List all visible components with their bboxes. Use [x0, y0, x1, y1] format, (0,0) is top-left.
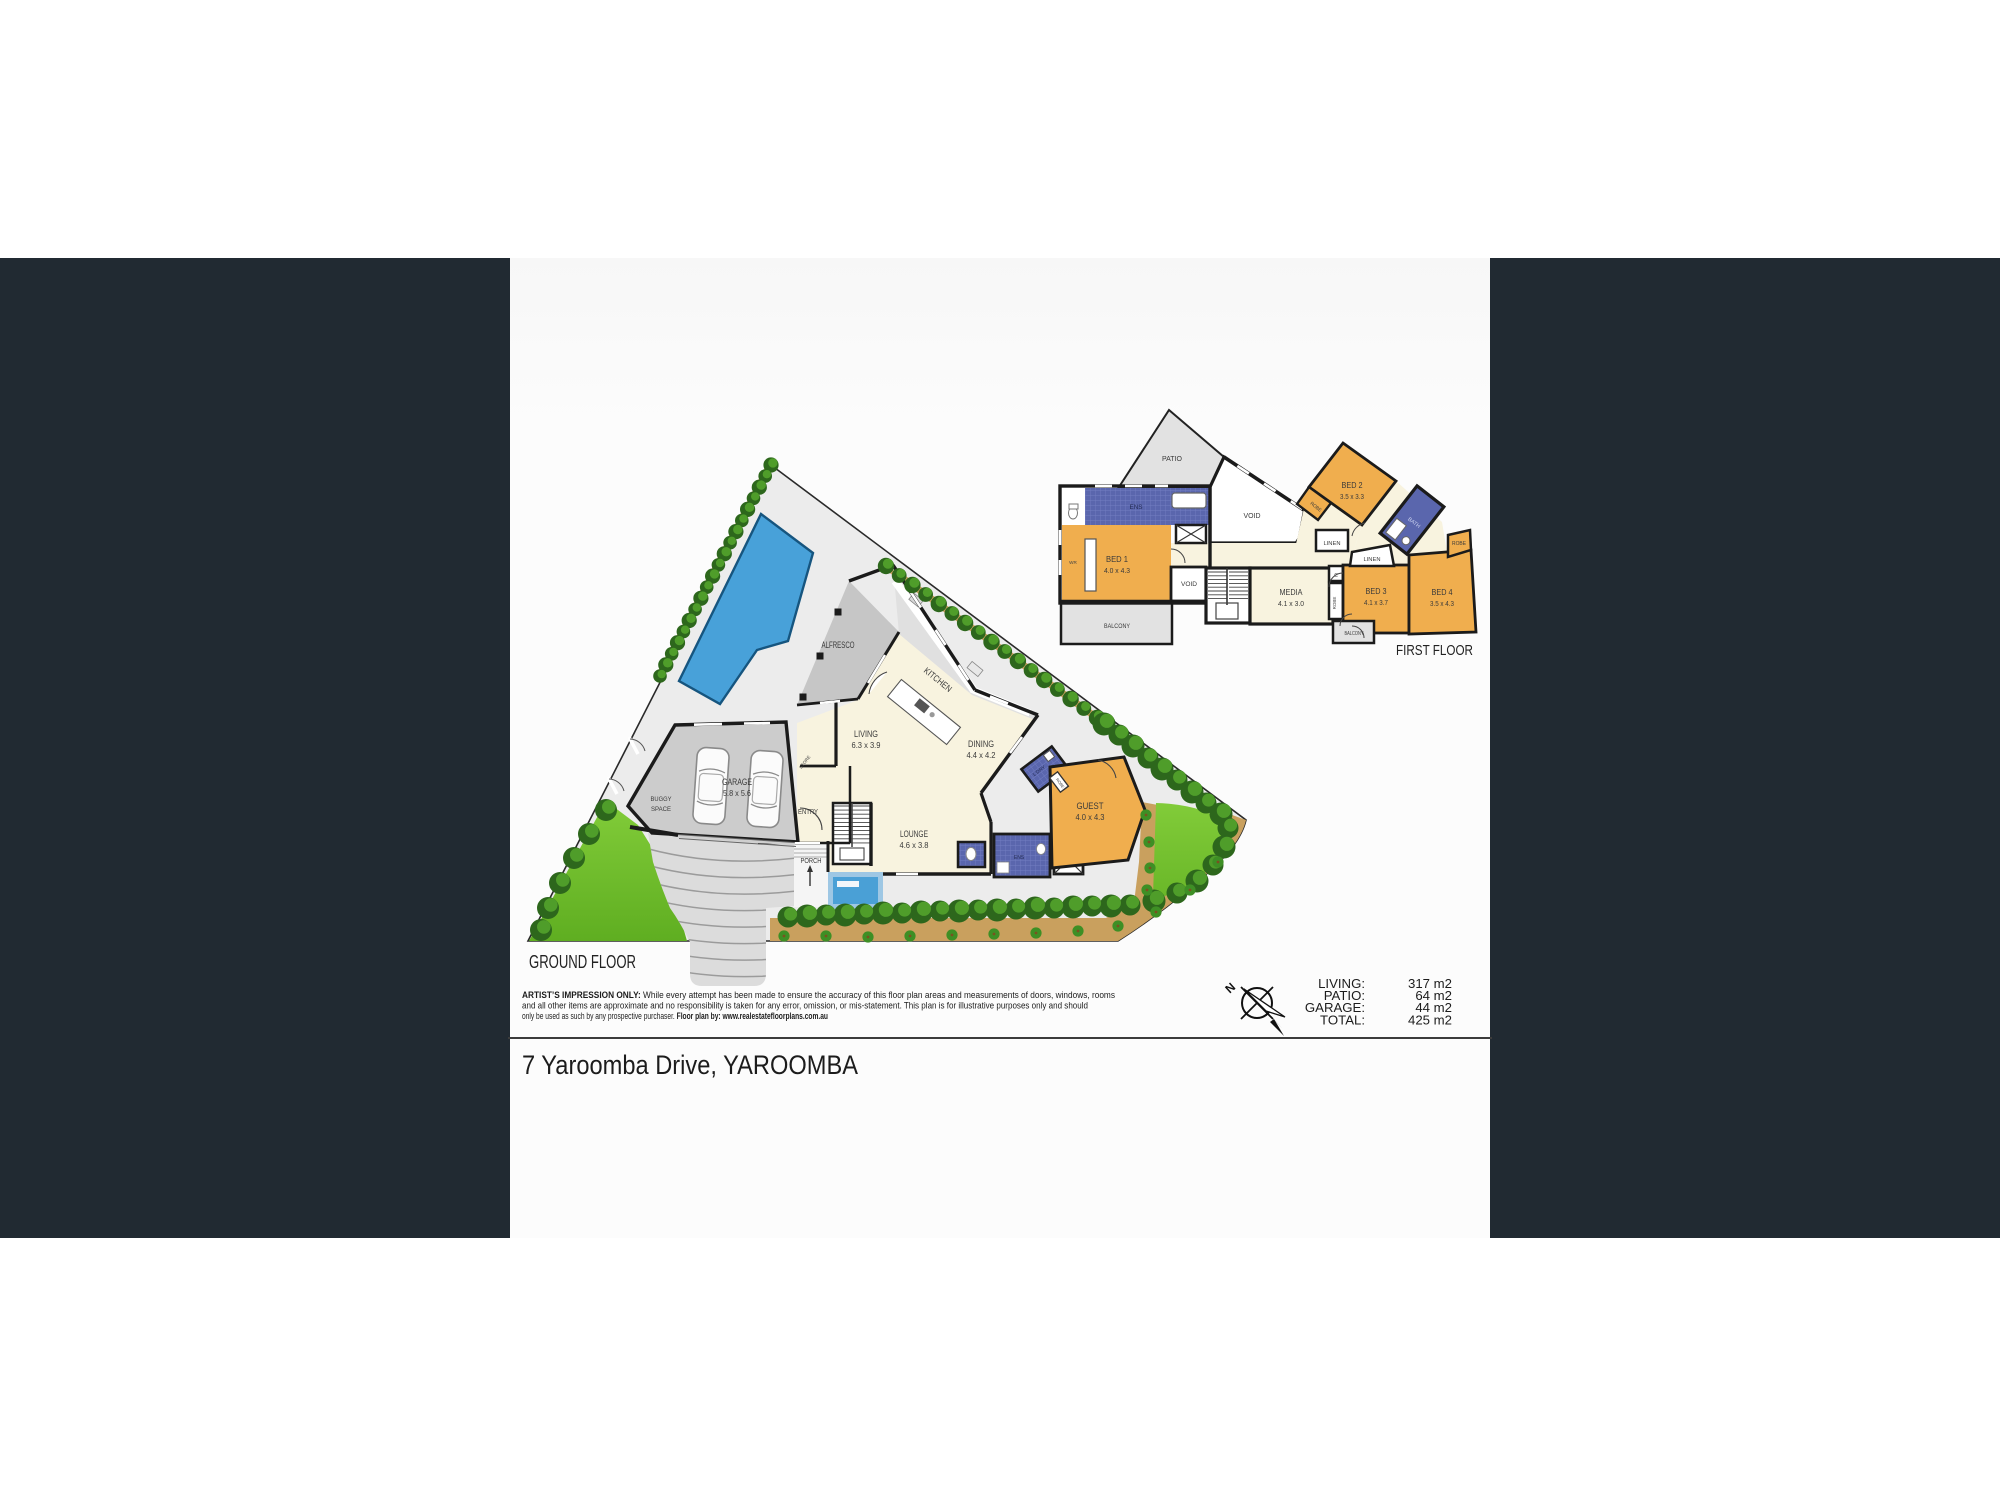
svg-text:LINEN: LINEN: [1324, 541, 1341, 547]
svg-text:BALCONY: BALCONY: [1104, 623, 1130, 630]
svg-text:425 m2: 425 m2: [1408, 1012, 1452, 1027]
svg-text:GARAGE: GARAGE: [722, 777, 752, 787]
svg-text:VOID: VOID: [1181, 581, 1197, 588]
svg-text:ENTRY: ENTRY: [798, 809, 818, 816]
svg-text:GROUND FLOOR: GROUND FLOOR: [529, 952, 636, 972]
svg-text:6.3 x 3.9: 6.3 x 3.9: [852, 741, 881, 750]
svg-text:TOTAL:: TOTAL:: [1320, 1012, 1365, 1027]
svg-text:WR: WR: [1069, 560, 1077, 565]
svg-text:ARTIST’S IMPRESSION ONLY: Whil: ARTIST’S IMPRESSION ONLY: While every at…: [522, 990, 1115, 1001]
svg-text:PATIO: PATIO: [1162, 456, 1183, 463]
svg-text:PORCH: PORCH: [801, 858, 822, 865]
svg-text:BED 4: BED 4: [1432, 588, 1453, 597]
svg-text:only be used as such by any pr: only be used as such by any prospective …: [522, 1011, 828, 1022]
svg-text:GUEST: GUEST: [1077, 801, 1104, 811]
svg-text:FIRST FLOOR: FIRST FLOOR: [1396, 643, 1473, 659]
svg-text:LOUNGE: LOUNGE: [900, 829, 928, 839]
svg-text:4.0 x 4.3: 4.0 x 4.3: [1076, 813, 1105, 822]
svg-text:3.5 x 4.3: 3.5 x 4.3: [1430, 601, 1454, 608]
svg-text:ROBE: ROBE: [1332, 597, 1337, 610]
svg-text:BED 3: BED 3: [1366, 587, 1387, 596]
svg-text:BED 2: BED 2: [1342, 481, 1363, 490]
svg-text:4.1 x 3.0: 4.1 x 3.0: [1278, 599, 1304, 608]
svg-text:LINEN: LINEN: [1364, 557, 1381, 563]
svg-text:BUGGY: BUGGY: [651, 796, 673, 803]
svg-text:4.0 x 4.3: 4.0 x 4.3: [1104, 566, 1130, 575]
svg-text:4.1 x 3.7: 4.1 x 3.7: [1364, 600, 1388, 607]
svg-text:DINING: DINING: [968, 739, 994, 749]
svg-text:C: C: [1334, 573, 1338, 579]
svg-text:VOID: VOID: [1244, 511, 1261, 520]
svg-text:BALCONY: BALCONY: [1345, 631, 1364, 637]
svg-text:MEDIA: MEDIA: [1280, 588, 1303, 597]
svg-text:3.5 x 3.3: 3.5 x 3.3: [1340, 494, 1364, 501]
svg-text:ENS: ENS: [1014, 855, 1025, 861]
svg-text:SPACE: SPACE: [651, 806, 671, 813]
svg-text:ALFRESCO: ALFRESCO: [822, 640, 855, 650]
svg-text:LIVING: LIVING: [854, 729, 878, 739]
svg-text:ENS: ENS: [1130, 505, 1143, 511]
svg-text:7 Yaroomba Drive, YAROOMBA: 7 Yaroomba Drive, YAROOMBA: [522, 1050, 858, 1080]
svg-text:BED 1: BED 1: [1106, 555, 1128, 564]
svg-text:4.6 x 3.8: 4.6 x 3.8: [900, 841, 929, 850]
svg-text:5.8 x 5.6: 5.8 x 5.6: [723, 789, 751, 798]
svg-text:4.4 x 4.2: 4.4 x 4.2: [967, 751, 996, 760]
svg-text:ROBE: ROBE: [1452, 541, 1467, 547]
svg-text:and all other items are approx: and all other items are approximate and …: [522, 1001, 1088, 1012]
